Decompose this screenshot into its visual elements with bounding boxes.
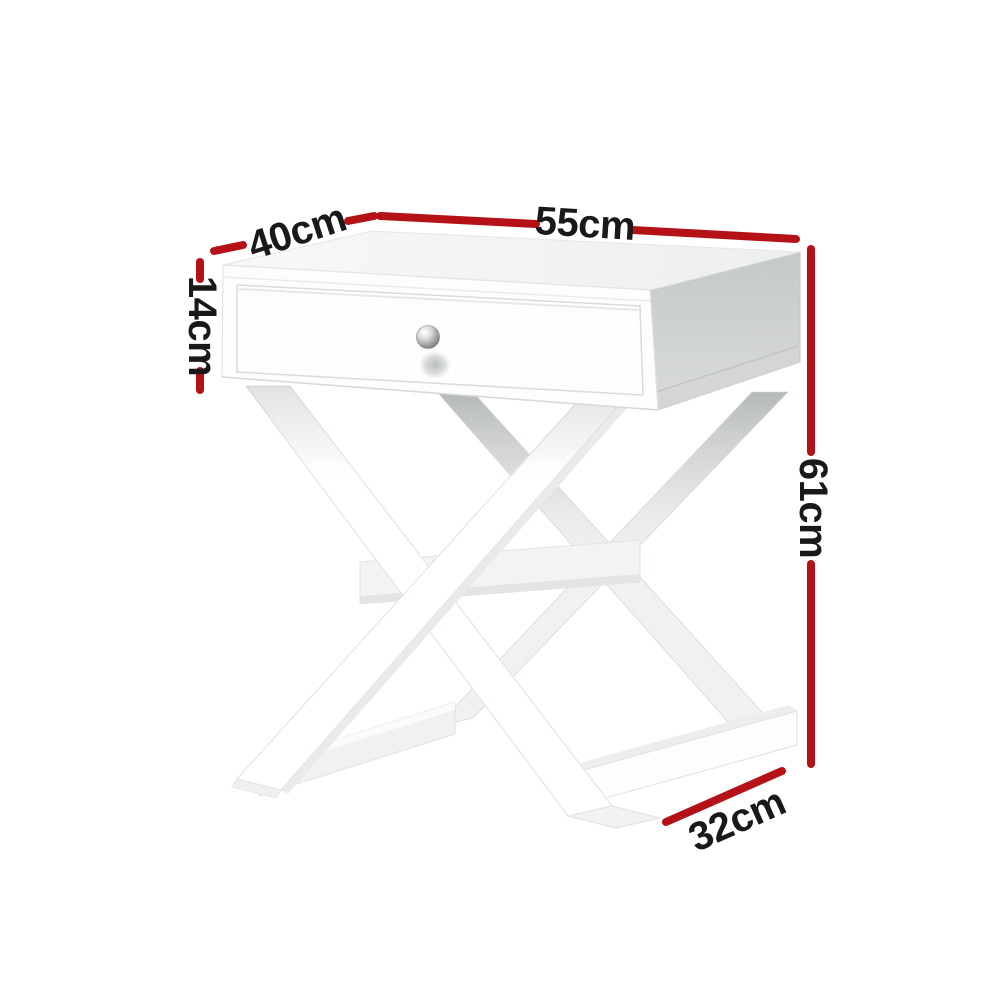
drawer-knob-shadow — [419, 351, 451, 379]
product-dimension-diagram: 40cm 55cm 14cm 61cm 32cm — [0, 0, 1000, 1000]
tabletop-box — [222, 231, 800, 410]
drawer-knob — [417, 326, 440, 349]
dimension-line-top-width-a — [380, 216, 536, 224]
dimension-line-top-depth-b — [348, 216, 374, 221]
dimension-label-overall-height: 61cm — [791, 458, 835, 558]
bedside-table-diagram-canvas: 40cm 55cm 14cm 61cm 32cm — [0, 0, 1000, 1000]
dimension-base-depth: 32cm — [666, 771, 792, 860]
dimension-drawer-height: 14cm — [180, 262, 224, 390]
dimension-label-top-width: 55cm — [534, 199, 637, 249]
dimension-line-top-width-b — [632, 230, 796, 239]
dimension-label-drawer-height: 14cm — [180, 276, 224, 376]
dimension-line-top-depth-a — [214, 245, 243, 251]
